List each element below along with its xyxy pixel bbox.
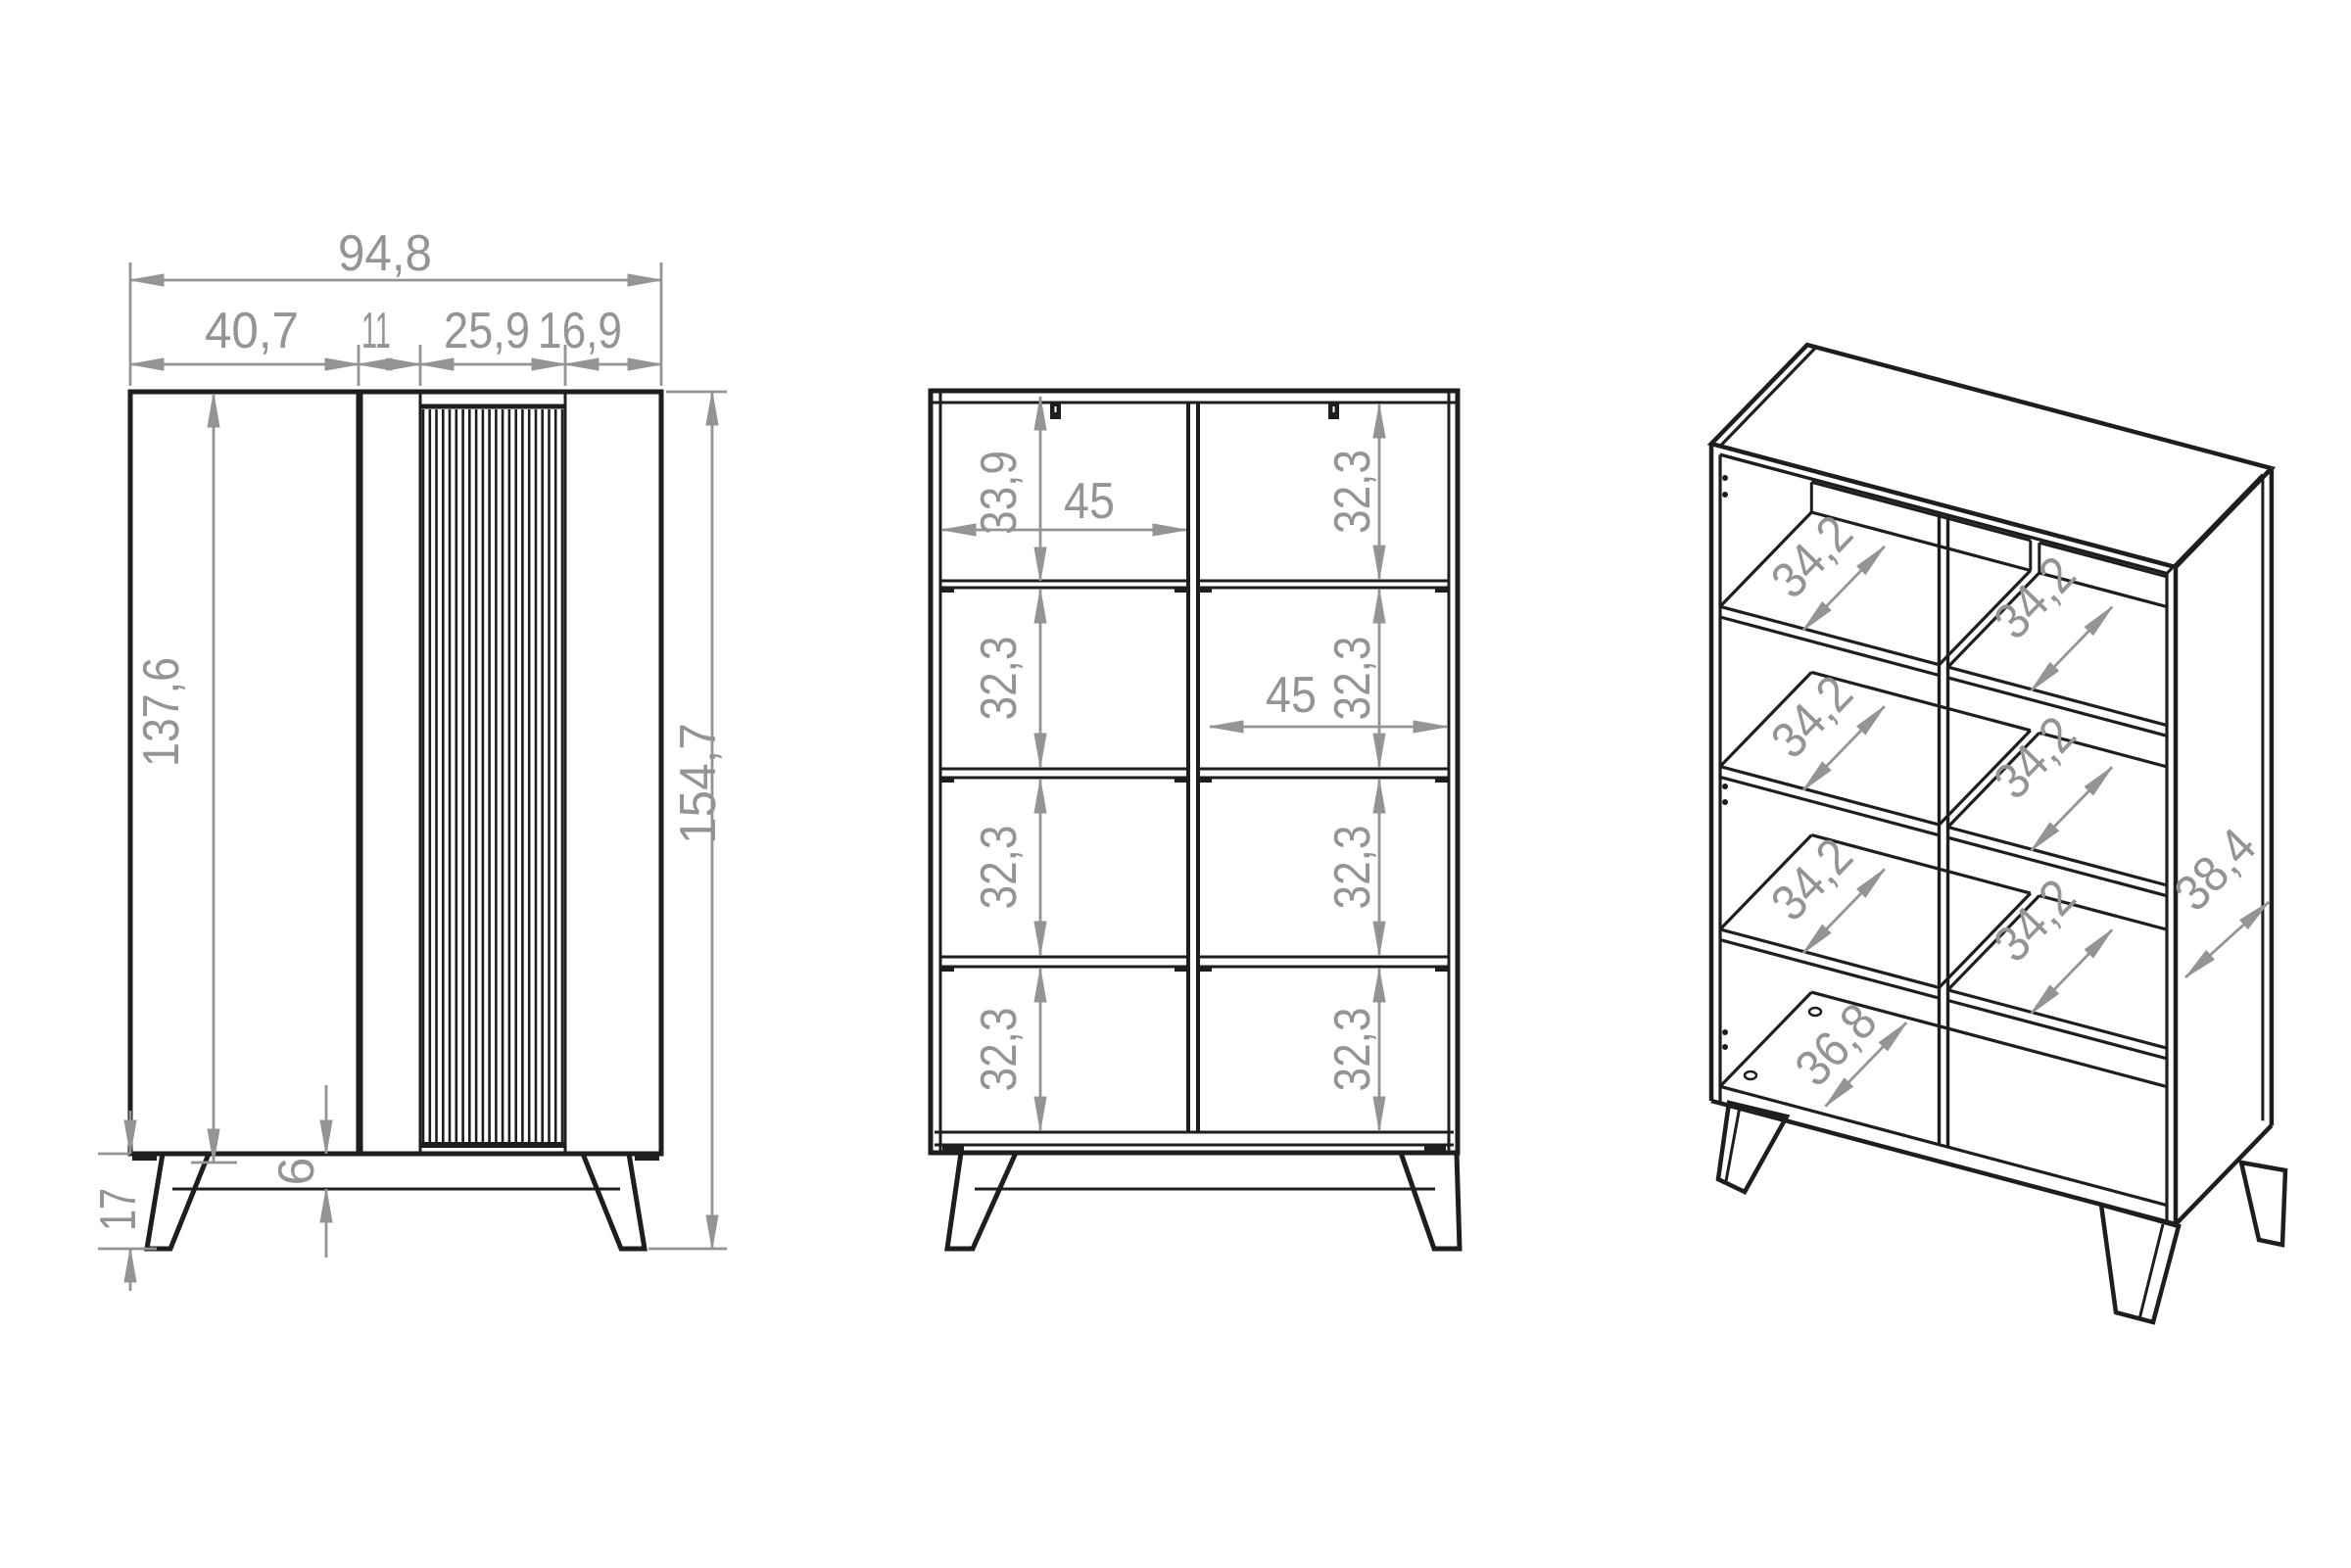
svg-text:25,9: 25,9 [444,303,530,359]
svg-text:94,8: 94,8 [338,225,432,282]
svg-text:33,9: 33,9 [971,451,1028,535]
svg-text:137,6: 137,6 [133,657,190,767]
svg-text:45: 45 [1266,667,1317,724]
svg-text:32,3: 32,3 [971,1008,1028,1092]
svg-text:32,3: 32,3 [971,826,1028,910]
svg-text:40,7: 40,7 [205,303,299,359]
svg-text:32,3: 32,3 [1324,450,1381,534]
svg-text:32,3: 32,3 [1324,1008,1381,1092]
svg-text:17: 17 [90,1188,147,1231]
svg-text:6: 6 [268,1158,325,1186]
svg-text:16,9: 16,9 [538,303,622,359]
svg-text:32,3: 32,3 [1324,637,1381,721]
svg-text:32,3: 32,3 [971,637,1028,721]
svg-text:45: 45 [1064,473,1115,530]
svg-text:32,3: 32,3 [1324,826,1381,910]
svg-text:11: 11 [361,303,391,359]
svg-text:154,7: 154,7 [670,723,727,844]
